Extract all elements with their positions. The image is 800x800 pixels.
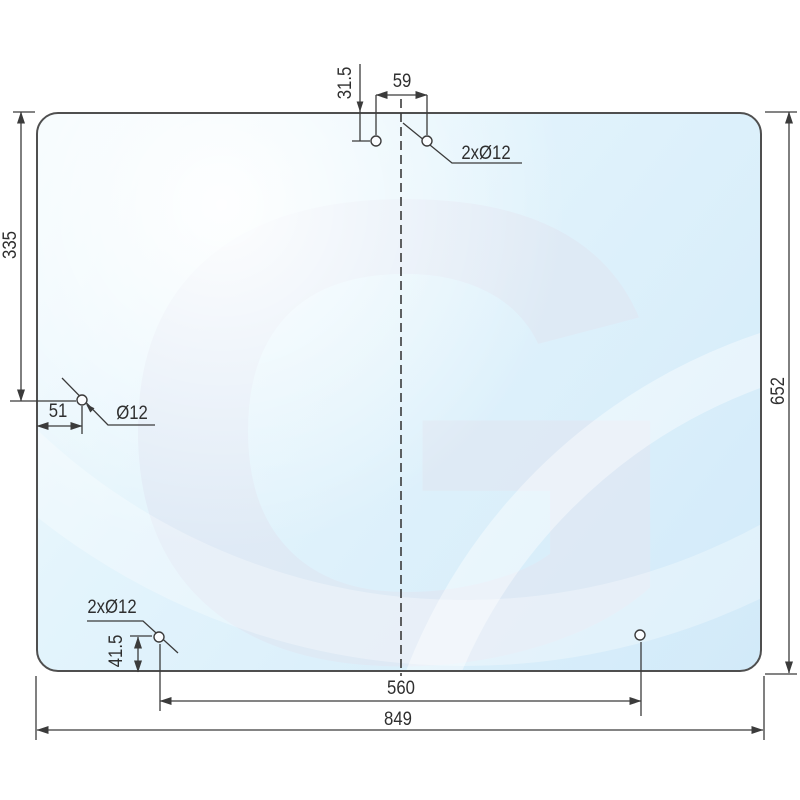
dim-label-side-hole: Ø12 xyxy=(116,403,148,425)
dim-label-bottom-offset: 41.5 xyxy=(106,635,128,668)
dim-label-bottom-spacing: 560 xyxy=(387,678,415,700)
dim-label-pane-width: 849 xyxy=(384,709,412,731)
glass-panel: G xyxy=(36,112,762,672)
dim-label-top-holes: 2xØ12 xyxy=(461,143,510,165)
dim-label-pane-height: 652 xyxy=(768,377,790,405)
technical-drawing: G xyxy=(0,0,800,800)
dim-label-bottom-holes: 2xØ12 xyxy=(87,597,136,619)
dim-label-side-height: 335 xyxy=(0,231,22,259)
dim-label-top-offset: 31.5 xyxy=(335,67,357,100)
glass-reflection-ring xyxy=(36,112,762,666)
dim-label-top-spacing: 59 xyxy=(393,71,412,93)
dim-label-side-inset: 51 xyxy=(49,401,68,423)
